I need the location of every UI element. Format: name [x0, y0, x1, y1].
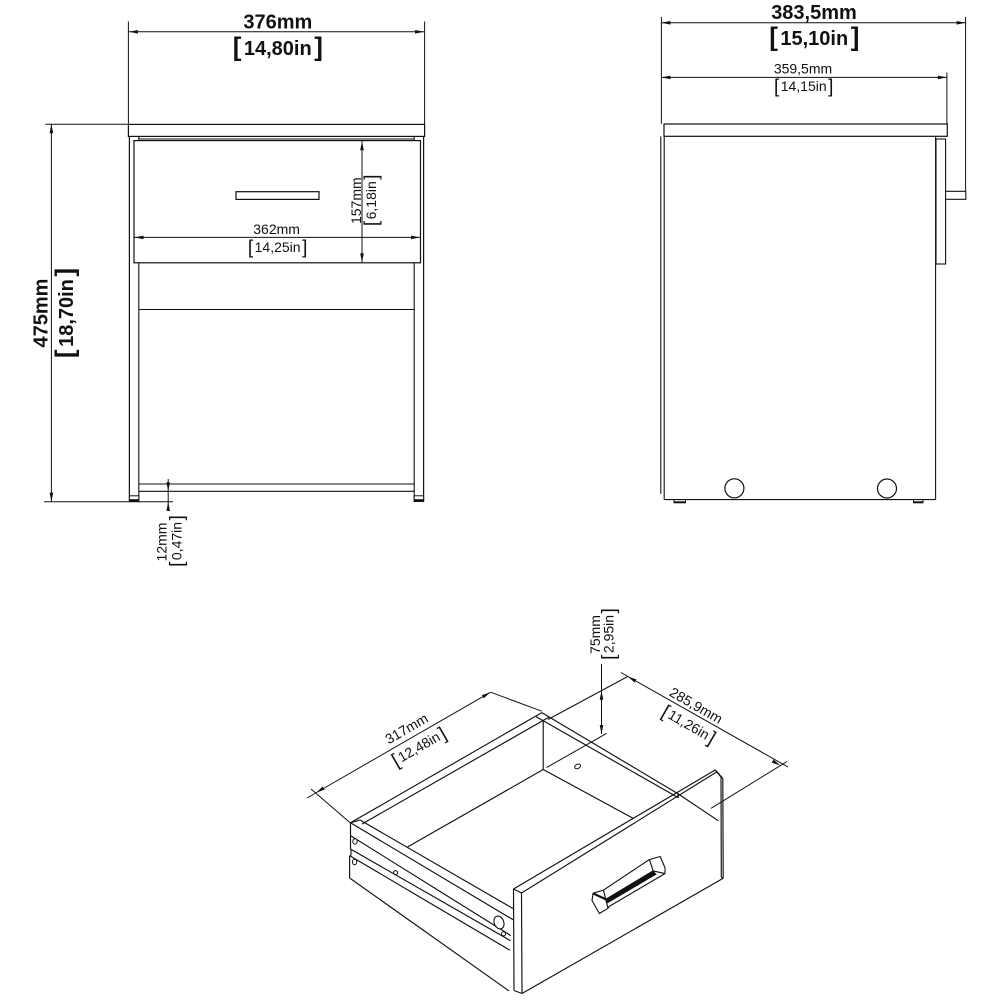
- svg-text:359,5mm: 359,5mm: [774, 60, 832, 76]
- svg-text:12mm: 12mm: [153, 523, 169, 562]
- svg-text:376mm: 376mm: [243, 12, 312, 34]
- svg-text:383,5mm: 383,5mm: [771, 2, 857, 24]
- svg-text:157mm: 157mm: [348, 177, 364, 224]
- svg-text:362mm: 362mm: [253, 221, 300, 237]
- svg-text:475mm: 475mm: [30, 279, 52, 348]
